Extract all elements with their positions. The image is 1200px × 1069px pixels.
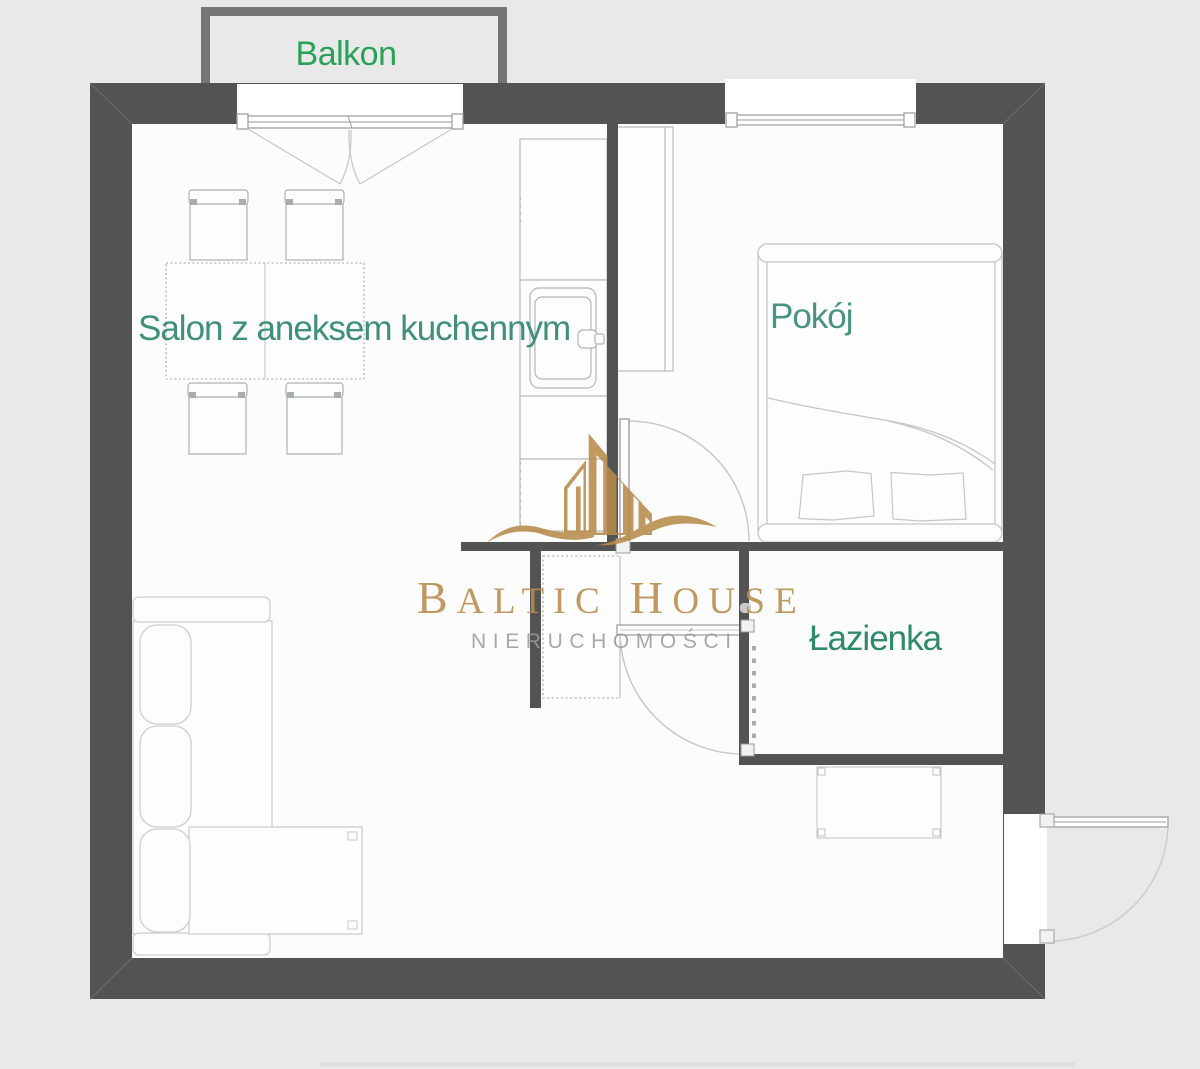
svg-text:Łazienka: Łazienka — [809, 619, 943, 658]
svg-text:Salon z aneksem kuchennym: Salon z aneksem kuchennym — [138, 309, 570, 348]
svg-text:Pokój: Pokój — [770, 297, 853, 336]
svg-text:NIERUCHOMOŚCI: NIERUCHOMOŚCI — [471, 629, 738, 653]
svg-text:Balkon: Balkon — [296, 35, 397, 73]
